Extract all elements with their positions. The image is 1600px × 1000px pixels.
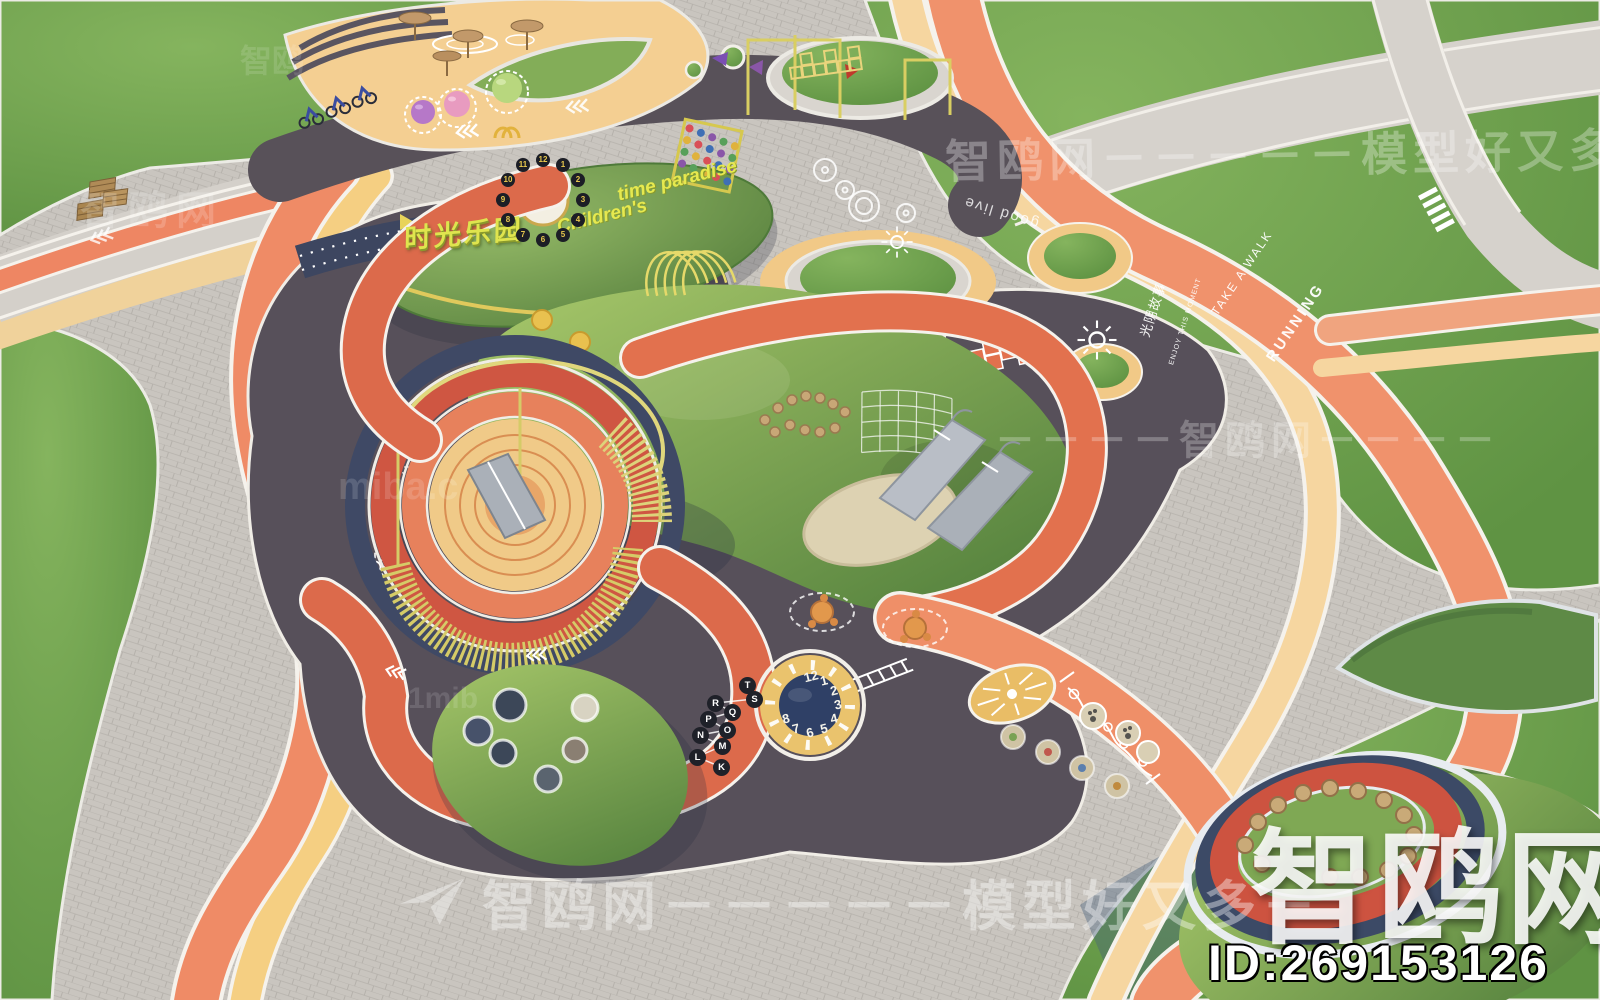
alphabet-dot: M (714, 738, 731, 755)
alphabet-dot: P (700, 711, 717, 728)
terrain-render (0, 0, 1600, 1000)
alphabet-dot: S (746, 691, 763, 708)
alphabet-dot: N (692, 727, 709, 744)
alphabet-dot: R (707, 695, 724, 712)
alphabet-dot: Q (724, 704, 741, 721)
ground-dial (756, 651, 864, 759)
park-render-scene: 智鸥网－－－－－模型好又多 －－－－智鸥网－－－－ 智鸥网－－－－－模型好又多－… (0, 0, 1600, 1000)
alphabet-dot: L (689, 749, 706, 766)
alphabet-dot: K (713, 759, 730, 776)
alphabet-dot: O (719, 722, 736, 739)
